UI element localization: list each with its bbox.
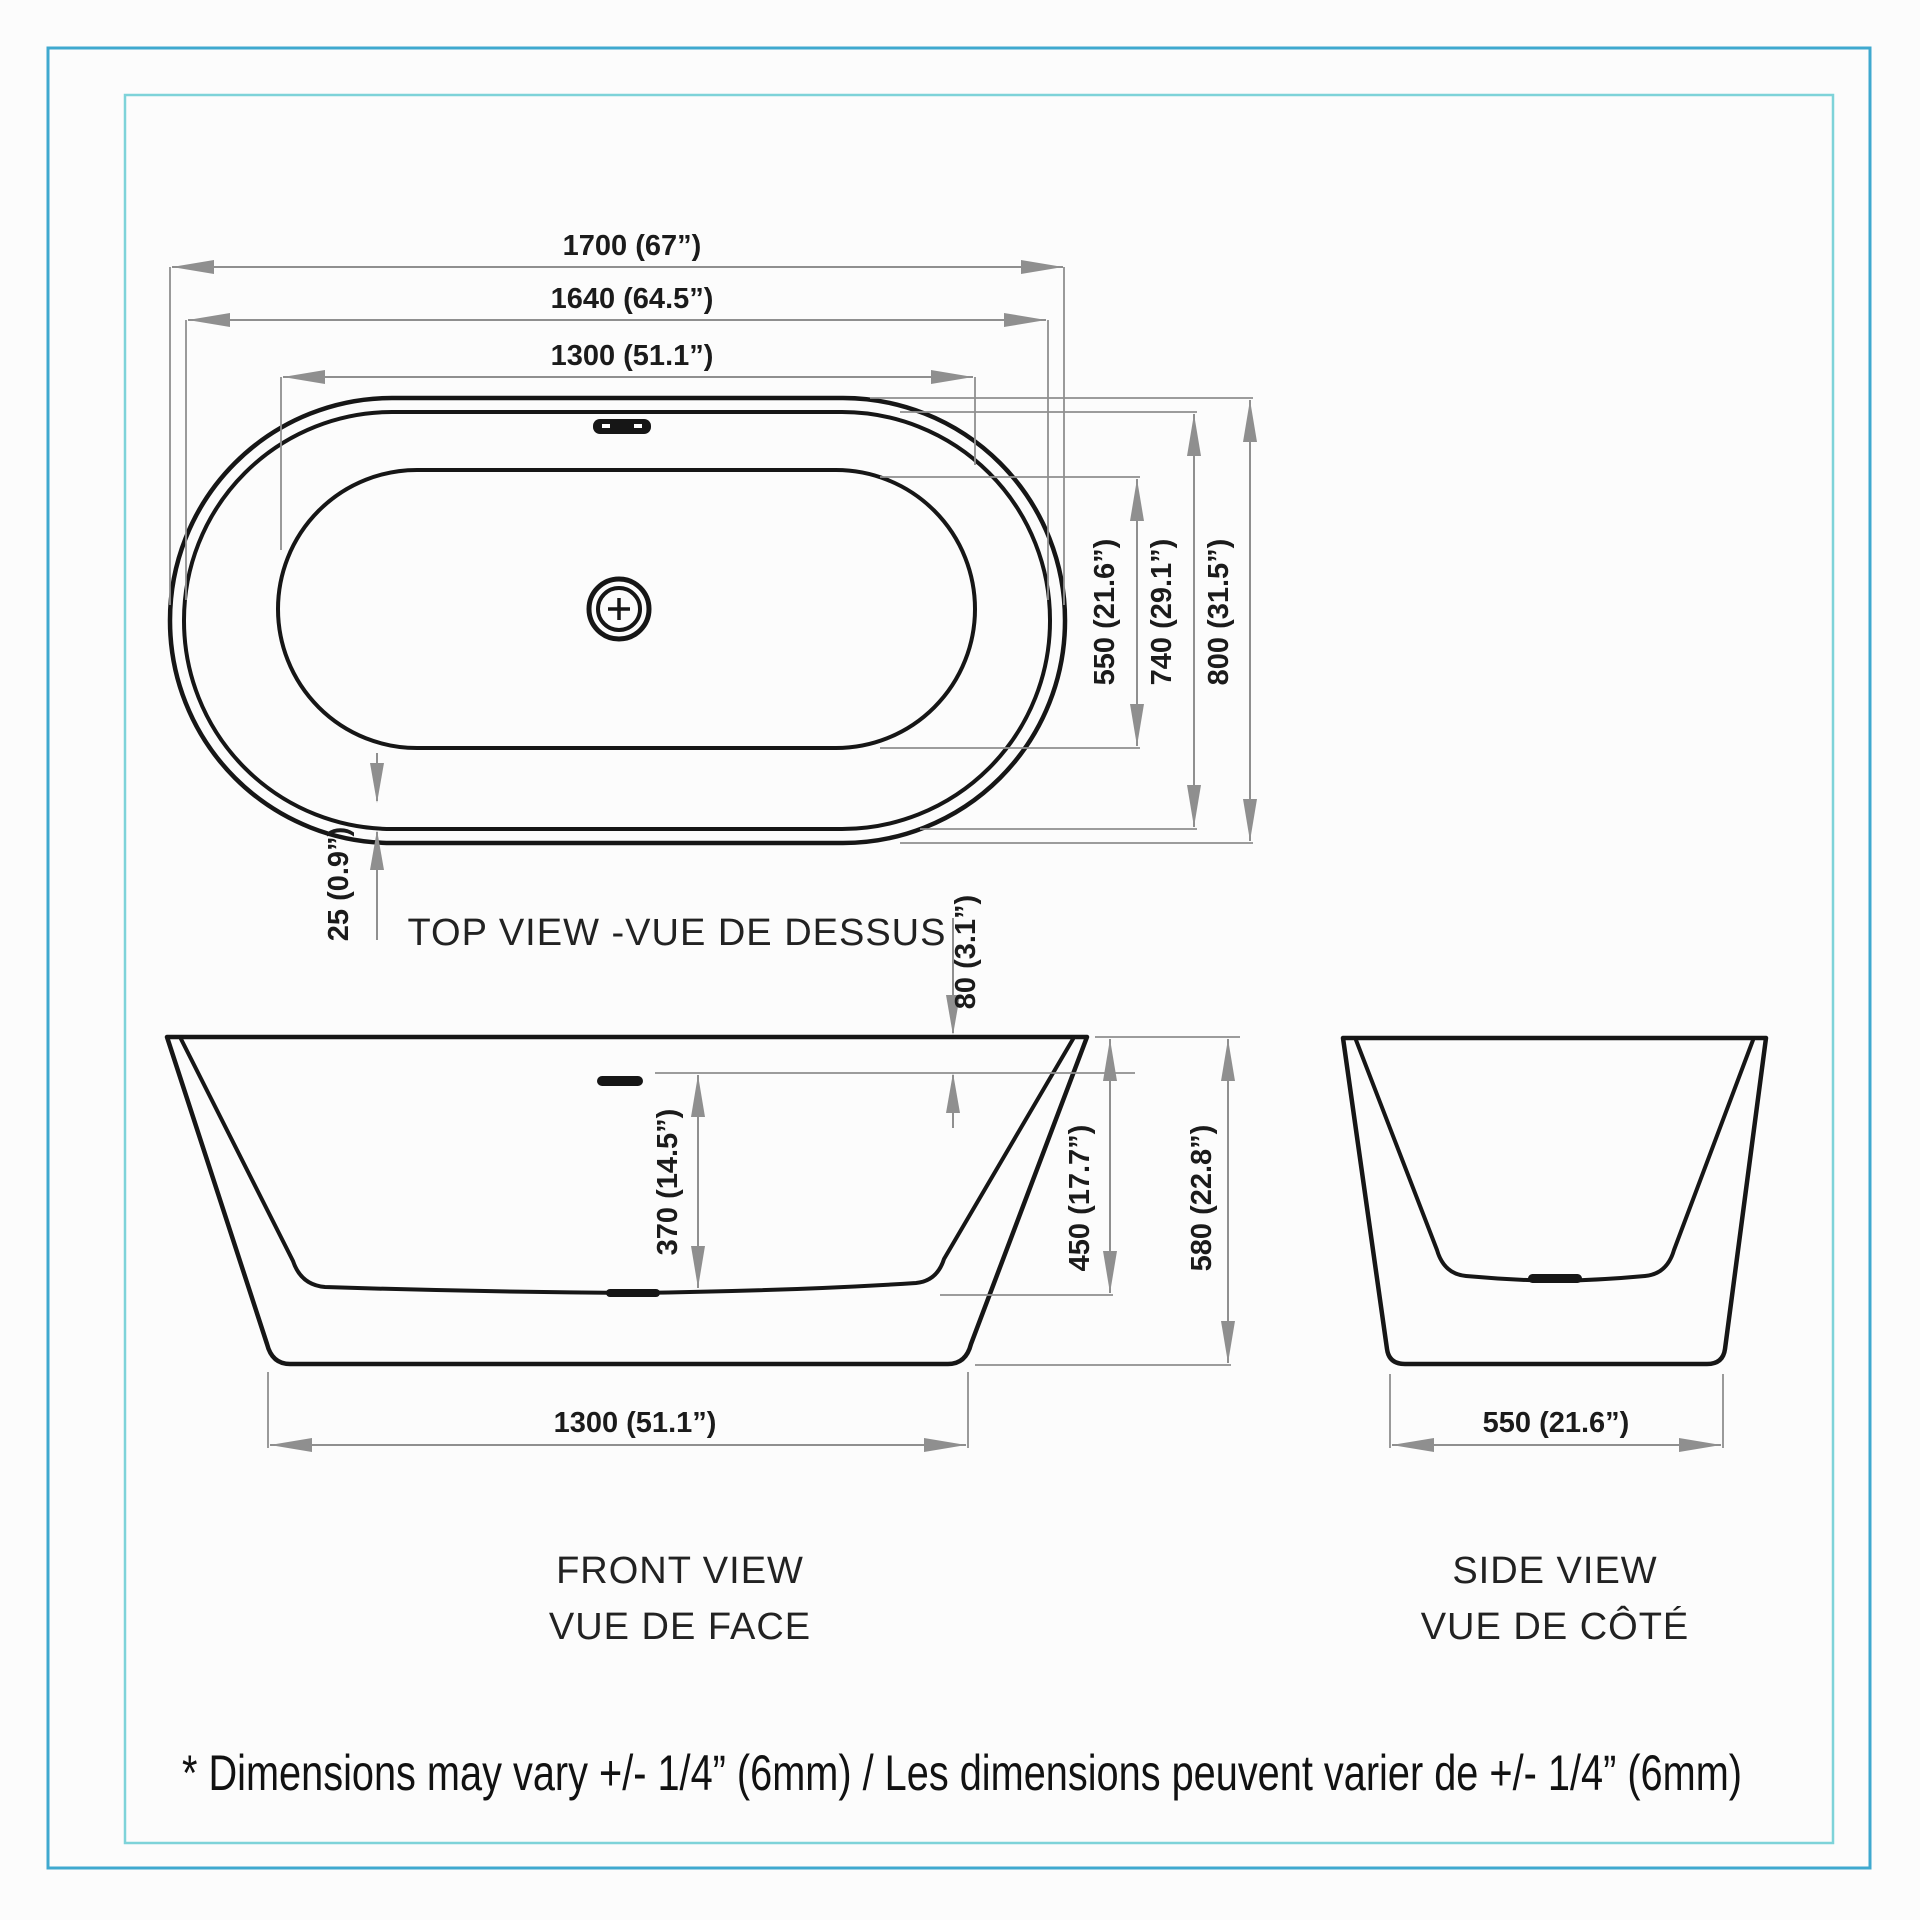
overflow-slot-right <box>634 424 642 428</box>
dim-label-rim-thickness: 25 (0.9”) <box>323 827 355 941</box>
tolerance-footnote: * Dimensions may vary +/- 1/4” (6mm) / L… <box>182 1745 1742 1801</box>
front-view: 80 (3.1”) 370 (14.5”) 450 (17.7”) 580 (2… <box>167 895 1240 1648</box>
side-view-title-en: SIDE VIEW <box>1452 1550 1657 1592</box>
drain-front-view <box>606 1289 660 1297</box>
dim-label-base-length: 1300 (51.1”) <box>554 1407 717 1439</box>
dim-label-rim-width: 740 (29.1”) <box>1146 539 1178 686</box>
overflow-drain-front-view <box>597 1076 643 1086</box>
top-view-outer-rim <box>170 398 1065 843</box>
front-view-title-en: FRONT VIEW <box>556 1550 804 1592</box>
bathtub-technical-drawing: 1700 (67”) 1640 (64.5”) 1300 (51.1”) 550… <box>0 0 1920 1920</box>
side-view-inner-profile <box>1356 1040 1753 1281</box>
overflow-slot-left <box>602 424 610 428</box>
dim-label-overall-width: 800 (31.5”) <box>1203 539 1235 686</box>
top-view: 1700 (67”) 1640 (64.5”) 1300 (51.1”) 550… <box>170 230 1257 954</box>
dim-label-overall-length: 1700 (67”) <box>563 230 702 262</box>
dim-label-overflow-to-bottom: 370 (14.5”) <box>652 1109 684 1256</box>
front-view-title-fr: VUE DE FACE <box>549 1606 811 1648</box>
dim-label-basin-length: 1300 (51.1”) <box>551 340 714 372</box>
dim-label-basin-depth: 450 (17.7”) <box>1064 1125 1096 1272</box>
side-view-outer-profile <box>1343 1038 1766 1364</box>
dim-label-rim-length: 1640 (64.5”) <box>551 283 714 315</box>
top-view-extension-lines-vertical <box>170 267 1064 605</box>
front-view-outer-profile <box>167 1037 1087 1364</box>
side-view: 550 (21.6”) SIDE VIEW VUE DE CÔTÉ <box>1343 1038 1766 1648</box>
drawing-page: 1700 (67”) 1640 (64.5”) 1300 (51.1”) 550… <box>0 0 1920 1920</box>
drain-top-view <box>589 579 649 639</box>
drain-side-view <box>1528 1274 1582 1283</box>
dim-label-overflow-drop: 80 (3.1”) <box>950 895 982 1009</box>
top-view-extension-lines-horizontal <box>870 398 1253 843</box>
overflow-drain-top-view <box>593 419 651 434</box>
top-view-title: TOP VIEW -VUE DE DESSUS <box>408 912 947 954</box>
dim-label-basin-width: 550 (21.6”) <box>1089 539 1121 686</box>
side-view-title-fr: VUE DE CÔTÉ <box>1421 1604 1690 1648</box>
top-view-inner-rim <box>184 412 1050 829</box>
dim-label-base-width: 550 (21.6”) <box>1483 1407 1630 1439</box>
dim-label-overall-height: 580 (22.8”) <box>1186 1125 1218 1272</box>
